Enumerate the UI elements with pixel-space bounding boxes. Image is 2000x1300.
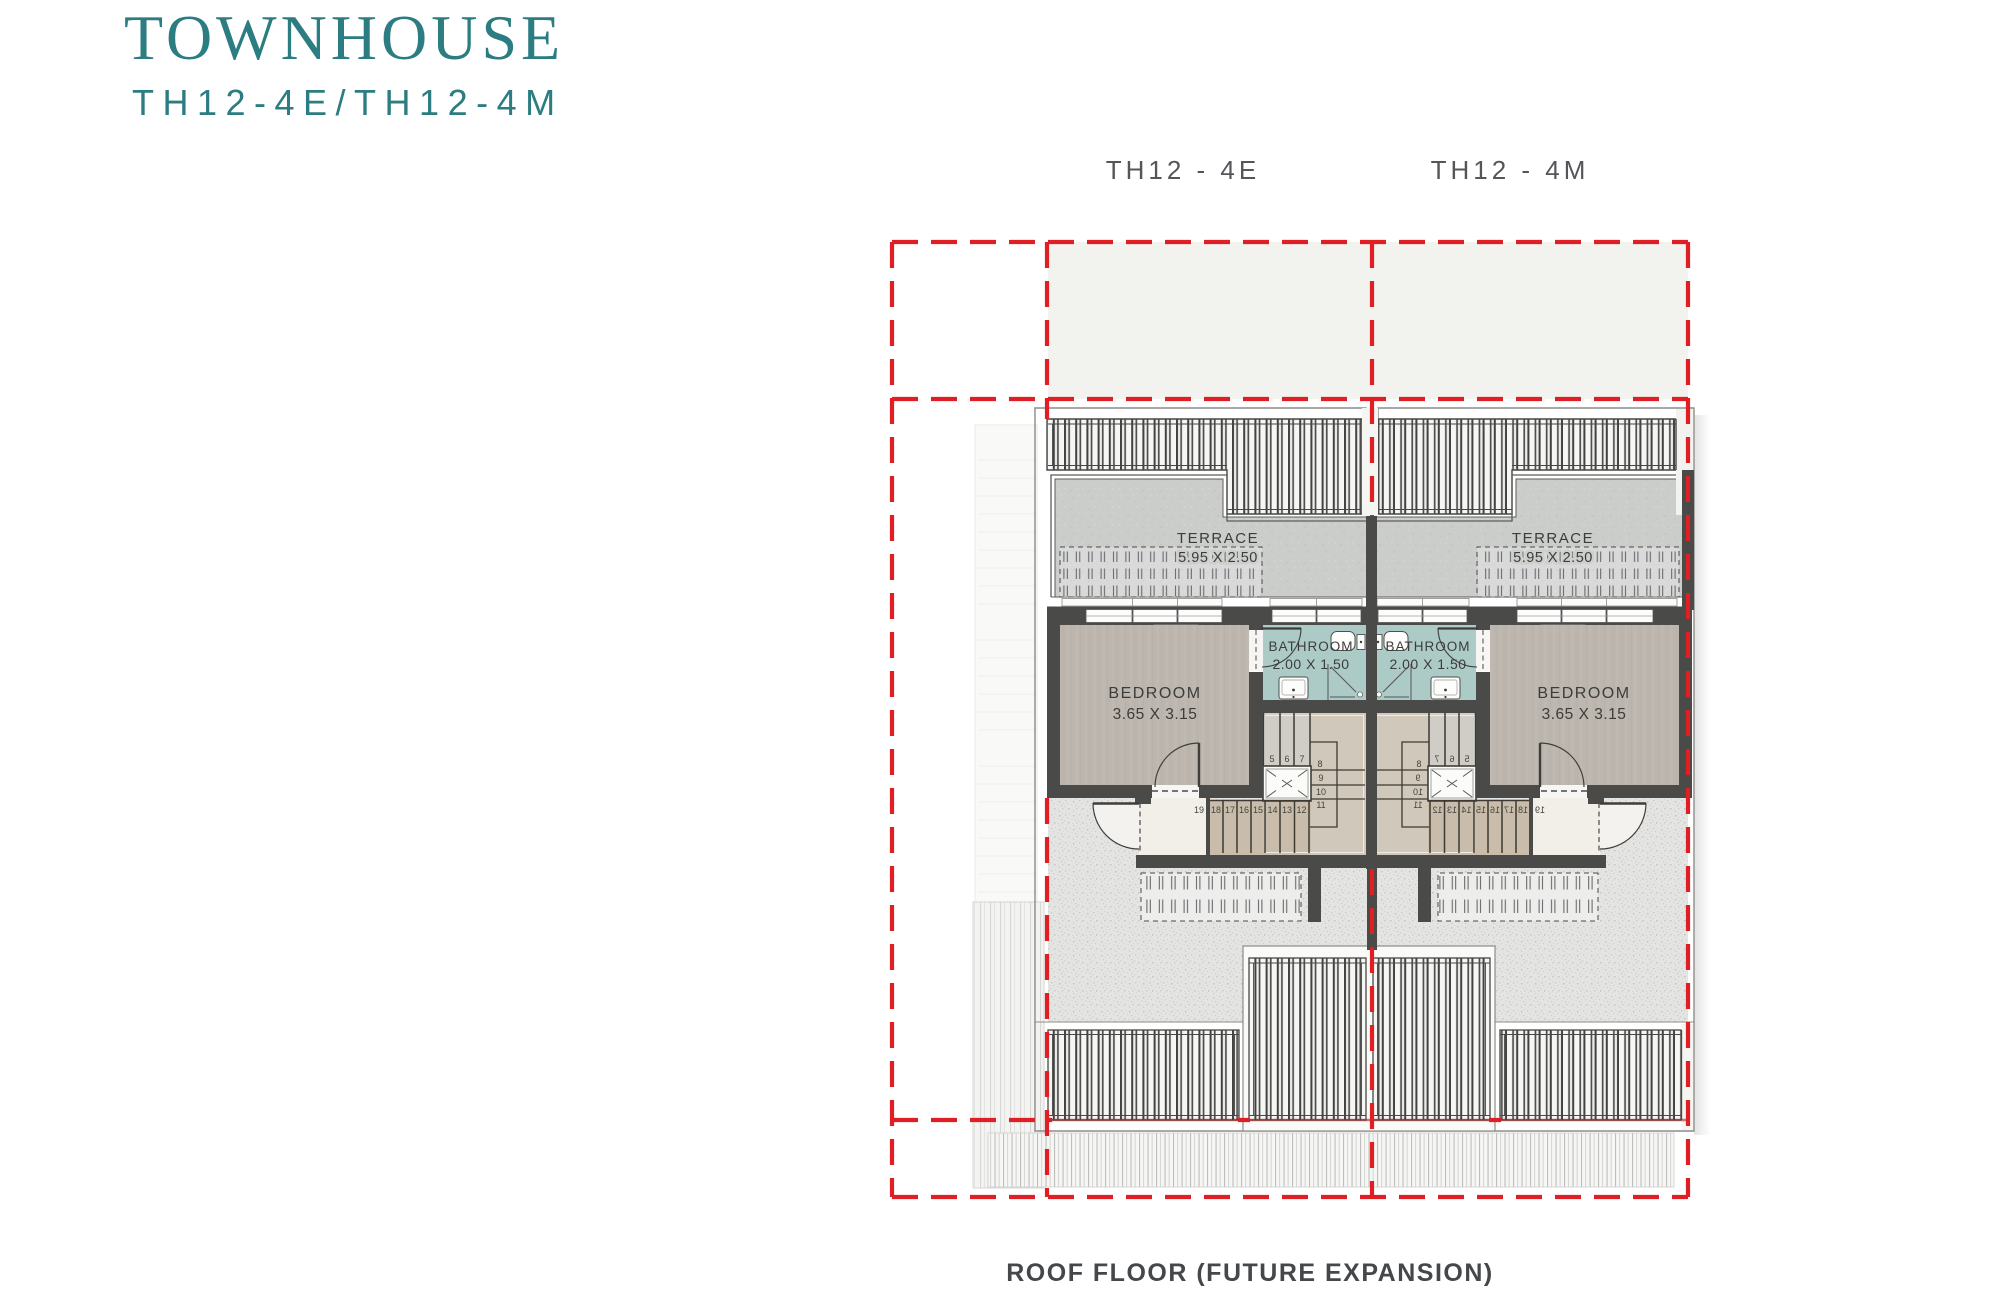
- svg-text:15: 15: [1253, 805, 1263, 815]
- svg-text:TH12 - 4E: TH12 - 4E: [1106, 155, 1261, 185]
- svg-text:3.65 X 3.15: 3.65 X 3.15: [1113, 706, 1198, 723]
- svg-text:9: 9: [1318, 773, 1323, 783]
- svg-text:TH12 - 4M: TH12 - 4M: [1431, 155, 1590, 185]
- svg-text:13: 13: [1282, 805, 1292, 815]
- svg-text:ROOF FLOOR (FUTURE EXPANSION): ROOF FLOOR (FUTURE EXPANSION): [1006, 1259, 1493, 1287]
- svg-text:TERRACE: TERRACE: [1512, 530, 1594, 547]
- svg-text:5.95 X 2.50: 5.95 X 2.50: [1178, 550, 1258, 566]
- svg-text:12: 12: [1296, 805, 1306, 815]
- svg-text:17: 17: [1225, 805, 1235, 815]
- svg-text:3.65 X 3.15: 3.65 X 3.15: [1542, 706, 1627, 723]
- svg-text:BATHROOM: BATHROOM: [1269, 639, 1354, 654]
- svg-text:TOWNHOUSE: TOWNHOUSE: [124, 2, 564, 73]
- svg-text:TH12-4E/TH12-4M: TH12-4E/TH12-4M: [132, 82, 564, 123]
- svg-text:19: 19: [1194, 805, 1204, 815]
- svg-text:16: 16: [1239, 805, 1249, 815]
- svg-text:8: 8: [1317, 759, 1322, 769]
- svg-text:TERRACE: TERRACE: [1177, 530, 1259, 547]
- svg-text:2.00 X 1.50: 2.00 X 1.50: [1272, 656, 1349, 672]
- svg-text:6: 6: [1284, 754, 1289, 764]
- svg-text:2.00 X 1.50: 2.00 X 1.50: [1389, 656, 1466, 672]
- svg-text:14: 14: [1267, 805, 1277, 815]
- svg-text:BEDROOM: BEDROOM: [1537, 685, 1630, 702]
- svg-text:7: 7: [1299, 754, 1304, 764]
- svg-text:BATHROOM: BATHROOM: [1386, 639, 1471, 654]
- svg-text:11: 11: [1316, 800, 1325, 810]
- svg-text:5: 5: [1269, 754, 1274, 764]
- svg-text:10: 10: [1316, 787, 1326, 797]
- svg-text:5.95 X 2.50: 5.95 X 2.50: [1513, 550, 1593, 566]
- svg-text:BEDROOM: BEDROOM: [1108, 685, 1201, 702]
- svg-text:18: 18: [1211, 805, 1221, 815]
